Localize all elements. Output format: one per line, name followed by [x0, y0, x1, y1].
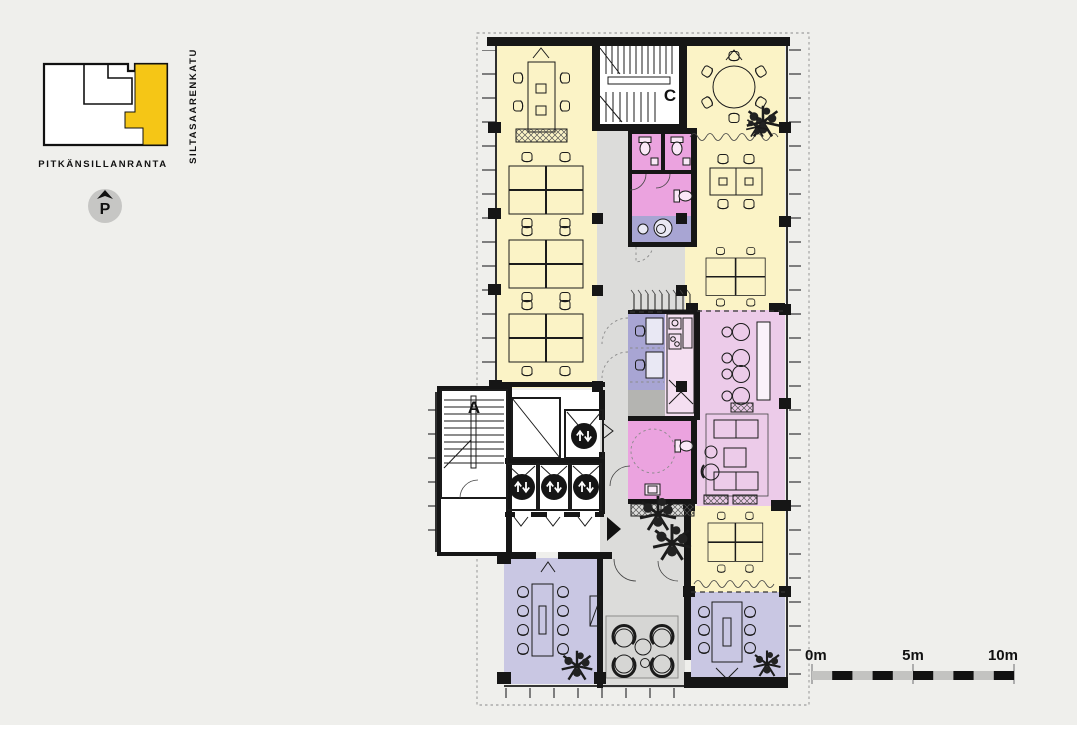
- scale-label-10m: 10m: [988, 647, 1018, 664]
- stair-c-label: C: [664, 86, 676, 105]
- elevator-icon: [573, 474, 599, 500]
- scale-label-5m: 5m: [902, 647, 924, 664]
- elevator-icon: [541, 474, 567, 500]
- floor-plan-canvas: PITKÄNSILLANRANTA SILTASAARENKATU P: [0, 0, 1077, 725]
- parking-label: P: [100, 201, 111, 218]
- parking-marker: P: [88, 189, 122, 223]
- zone-office-bottomright: [691, 506, 785, 592]
- stair-a-label: A: [468, 398, 480, 417]
- window-band-annex: [428, 394, 436, 550]
- street-name-bottom: PITKÄNSILLANRANTA: [38, 159, 167, 170]
- zone-office-topright: [684, 46, 785, 310]
- planter-box: [704, 495, 728, 504]
- elevator-icon: [571, 423, 597, 449]
- window-band-bottom: [504, 688, 686, 698]
- zone-wc-accessible: [628, 420, 697, 502]
- lockers: [516, 129, 567, 142]
- window-band-right: [789, 48, 801, 680]
- zone-meeting-right: [691, 592, 785, 680]
- planter-box: [733, 495, 757, 504]
- zone-closet: [628, 390, 665, 420]
- elevator-icon: [509, 474, 535, 500]
- planter-box: [731, 403, 753, 412]
- street-name-right: SILTASAARENKATU: [188, 48, 199, 164]
- scale-label-0m: 0m: [805, 647, 827, 664]
